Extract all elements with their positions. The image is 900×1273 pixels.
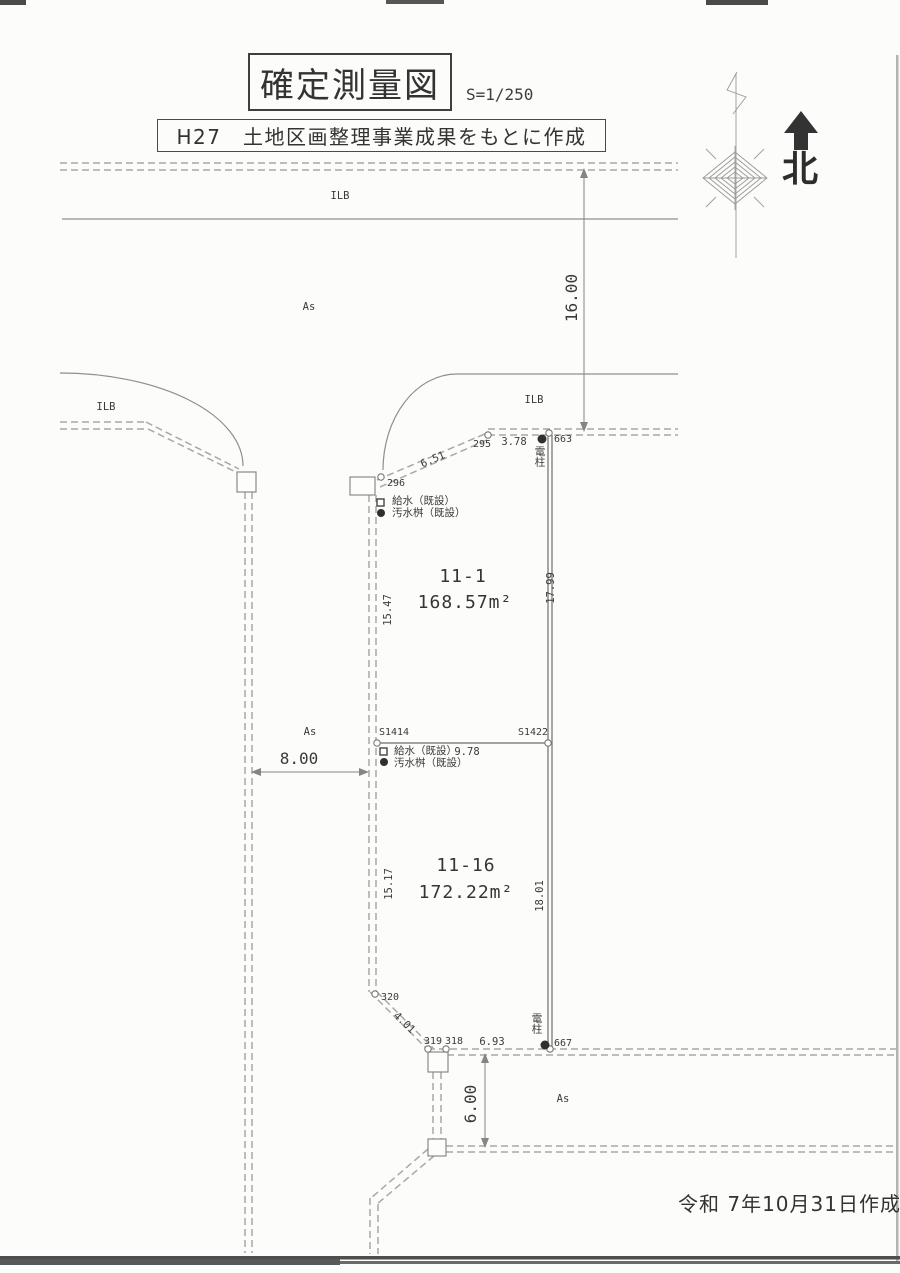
north-arrow-icon bbox=[784, 111, 818, 150]
north-label: 北 bbox=[782, 152, 818, 188]
dimension-line-6m bbox=[481, 1053, 489, 1148]
dim-south-seg: 6.93 bbox=[479, 1037, 504, 1048]
water-supply-label-top: 給水（既設） bbox=[392, 496, 455, 507]
parcel-11-1-id: 11-1 bbox=[439, 568, 486, 586]
surface-label-as-left: As bbox=[304, 727, 317, 738]
page-subtitle: H27 土地区画整理事業成果をもとに作成 bbox=[157, 119, 606, 152]
scan-edge-artifacts bbox=[0, 0, 900, 1265]
dimension-line-8m bbox=[251, 768, 369, 776]
survey-linework bbox=[0, 0, 900, 1273]
dim-east-lower: 18.01 bbox=[535, 880, 546, 912]
pole-label-bottom: 電柱 bbox=[531, 1013, 542, 1034]
dim-road-bottom-width: 6.00 bbox=[463, 1085, 479, 1124]
dim-north-seg: 3.78 bbox=[501, 437, 526, 448]
bottom-road-boundary-lines bbox=[370, 1049, 896, 1254]
dim-road-top-width: 16.00 bbox=[564, 274, 580, 322]
creation-date-note: 令和 7年10月31日作成 bbox=[678, 1194, 900, 1214]
point-label-s1422: S1422 bbox=[518, 728, 548, 738]
water-supply-label-mid: 給水（既設） bbox=[394, 746, 457, 757]
surface-label-as-top: As bbox=[303, 302, 316, 313]
survey-map-sheet: 確定測量図 S=1/250 H27 土地区画整理事業成果をもとに作成 北 ILB… bbox=[0, 0, 900, 1273]
parcel-11-16-area: 172.22m² bbox=[419, 884, 514, 902]
point-label-319: 319 bbox=[424, 1037, 442, 1047]
point-label-296: 296 bbox=[387, 479, 405, 489]
point-label-295: 295 bbox=[473, 440, 491, 450]
boundary-monument-markers bbox=[237, 472, 448, 1156]
point-label-s1414: S1414 bbox=[379, 728, 409, 738]
dim-west-lower: 15.17 bbox=[384, 868, 395, 900]
compass-star bbox=[703, 72, 767, 258]
survey-point-markers bbox=[372, 430, 553, 1052]
dimension-line-16m bbox=[580, 168, 588, 432]
dim-west-upper: 15.47 bbox=[383, 594, 394, 626]
dim-road-left-width: 8.00 bbox=[280, 751, 319, 767]
point-label-663: 663 bbox=[554, 435, 572, 445]
left-road-boundary-lines bbox=[245, 492, 252, 1253]
pole-label-top: 電柱 bbox=[534, 446, 545, 467]
water-supply-markers bbox=[377, 499, 387, 755]
point-label-318: 318 bbox=[445, 1037, 463, 1047]
surface-label-as-bottom: As bbox=[557, 1094, 570, 1105]
surface-label-ilb-left: ILB bbox=[97, 402, 116, 413]
parcel-11-16-id: 11-16 bbox=[436, 857, 495, 875]
parcel-west-boundary bbox=[369, 433, 489, 1048]
sewage-basin-label-mid: 汚水桝（既設） bbox=[394, 758, 468, 769]
pavement-edge-lines bbox=[60, 219, 678, 470]
point-label-320: 320 bbox=[381, 993, 399, 1003]
page-title: 確定測量図 bbox=[248, 53, 452, 111]
sewage-basin-label-top: 汚水桝（既設） bbox=[392, 508, 466, 519]
parcel-11-1-area: 168.57m² bbox=[418, 594, 513, 612]
dim-mid-seg: 9.78 bbox=[454, 747, 479, 758]
dim-east-upper: 17.99 bbox=[546, 572, 557, 604]
map-scale: S=1/250 bbox=[466, 87, 533, 103]
surface-label-ilb-right: ILB bbox=[525, 395, 544, 406]
surface-label-ilb-top: ILB bbox=[331, 191, 350, 202]
point-label-667: 667 bbox=[554, 1039, 572, 1049]
